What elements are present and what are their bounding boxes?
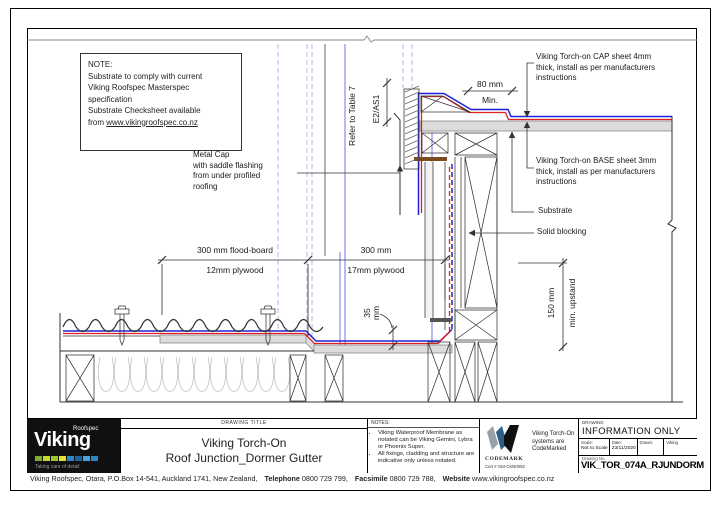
codemark-caption: Viking Torch-On systems are CodeMarked — [532, 431, 574, 454]
dim-17mm-plywood: 17mm plywood — [312, 265, 440, 275]
codemark-name: CODEMARK — [485, 456, 523, 462]
footer-fax: 0800 729 788, — [390, 474, 436, 483]
notes-cell: NOTES: Viking Waterproof Membrane as not… — [367, 419, 479, 473]
dim-12mm-plywood: 12mm plywood — [168, 265, 302, 275]
drawing-title-line1: Viking Torch-On — [202, 436, 287, 451]
footer-address: Viking Roofspec, Otara, P.O.Box 14-541, … — [30, 474, 257, 483]
drawing-title-heading: DRAWING TITLE — [121, 419, 367, 429]
drawn-by-field: Viking — [664, 439, 697, 455]
note-heading: NOTE: — [88, 60, 112, 69]
dim-min-upstand: min. upstand — [567, 263, 577, 343]
footer-web-label: Website — [443, 474, 470, 483]
substrate-label: Substrate — [538, 206, 572, 217]
drawn-field: Drawn: — [638, 439, 665, 455]
title-block: Roofspec Viking Taking care of detail DR… — [27, 418, 697, 473]
base-sheet-label: Viking Torch-on BASE sheet 3mm thick, in… — [536, 156, 656, 188]
viking-logo: Roofspec Viking Taking care of detail — [27, 419, 120, 473]
dim-300-flood-board: 300 mm flood-board — [168, 245, 302, 255]
drawing-number: VIK_TOR_074A_RJUNDORM — [581, 460, 704, 471]
technical-drawing-sheet: NOTE: Substrate to comply with current V… — [0, 0, 721, 510]
dim-35mm: 35 mm — [363, 293, 381, 333]
dim-150mm: 150 mm — [546, 273, 556, 333]
note-box: NOTE: Substrate to comply with current V… — [80, 53, 242, 151]
dim-300mm: 300 mm — [312, 245, 440, 255]
drawing-title-cell: DRAWING TITLE Viking Torch-On Roof Junct… — [120, 419, 367, 473]
notes-bullet-2: All fixings, cladding and structure are … — [378, 451, 477, 465]
footer-phone: 0800 729 799, — [302, 474, 348, 483]
solid-blocking-label: Solid blocking — [537, 227, 586, 238]
scale-value: Not to Scale — [581, 446, 608, 451]
cap-sheet-label: Viking Torch-on CAP sheet 4mm thick, ins… — [536, 52, 655, 84]
drawn-label: Drawn: — [640, 440, 654, 445]
information-only-status: INFORMATION ONLY — [582, 426, 680, 437]
footer-website: www.vikingroofspec.co.nz — [472, 474, 554, 483]
dim-80mm: 80 mm — [467, 79, 513, 89]
membrane-termination-bar — [430, 318, 452, 322]
footer-phone-label: Telephone — [264, 474, 299, 483]
scale-field: Scale: Not to Scale — [579, 439, 610, 455]
refer-table-label: Refer to Table 7 — [347, 66, 357, 166]
scale-label: Scale: — [581, 440, 593, 445]
notes-bullet-1: Viking Waterproof Membrane as notated ca… — [378, 430, 477, 451]
codemark-cell: CODEMARK Cert # GM-CM30092 Viking Torch-… — [479, 419, 578, 473]
drawing-title-line2: Roof Junction_Dormer Gutter — [166, 451, 323, 466]
note-body: Substrate to comply with current Viking … — [88, 72, 202, 116]
dim-80mm-min: Min. — [467, 95, 513, 105]
note-from: from — [88, 118, 106, 127]
notes-heading: NOTES: — [368, 419, 479, 428]
codemark-cert-number: Cert # GM-CM30092 — [485, 464, 525, 469]
date-field: Date: 23/11/2020 — [610, 439, 638, 455]
logo-color-squares-icon — [35, 456, 98, 461]
drawing-info-cell: DRAWING INFORMATION ONLY Scale: Not to S… — [578, 419, 697, 473]
codemark-logo-icon — [486, 424, 520, 454]
info-heading: DRAWING — [582, 420, 604, 425]
logo-tagline: Taking care of detail — [35, 464, 79, 470]
drawn-by-label: Viking — [666, 440, 678, 445]
date-label: Date: — [612, 440, 622, 445]
sheet-footer: Viking Roofspec, Otara, P.O.Box 14-541, … — [30, 474, 694, 483]
date-value: 23/11/2020 — [612, 446, 636, 451]
note-url: www.vikingroofspec.co.nz — [106, 118, 198, 127]
logo-brand-label: Viking — [34, 429, 91, 452]
e2-as1-label: E2/AS1 — [371, 79, 381, 139]
metal-cap-label: Metal Cap with saddle flashing from unde… — [193, 150, 263, 192]
footer-fax-label: Facsimile — [355, 474, 388, 483]
